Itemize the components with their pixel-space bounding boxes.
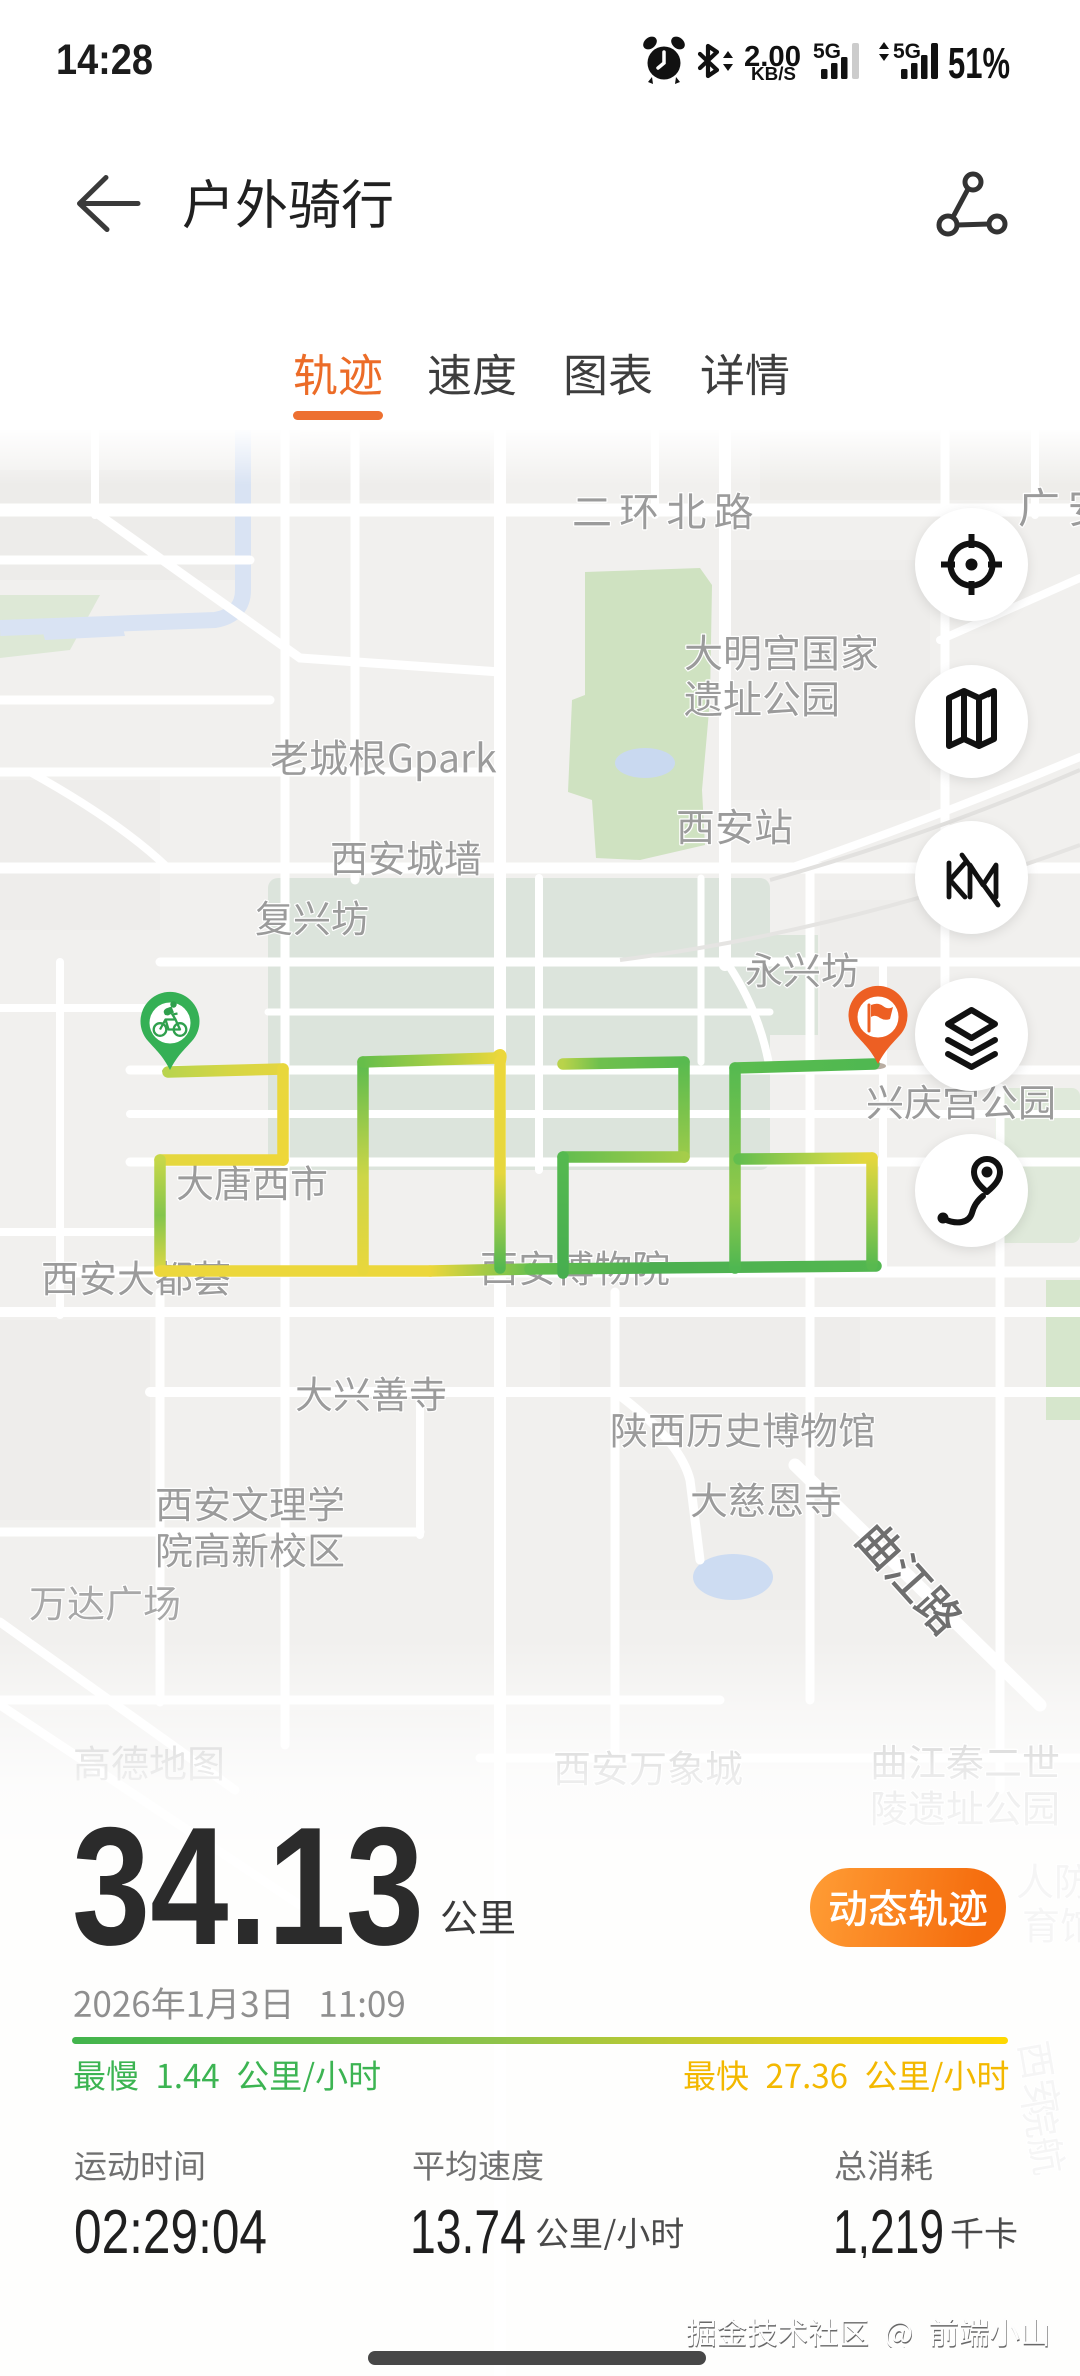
svg-text:34.13: 34.13 xyxy=(72,1818,424,1950)
svg-text:KB/S: KB/S xyxy=(751,64,796,84)
svg-text:1,219: 1,219 xyxy=(833,2198,944,2258)
svg-text:5G: 5G xyxy=(893,40,921,63)
svg-text:13.74: 13.74 xyxy=(410,2198,526,2258)
svg-text:14:28: 14:28 xyxy=(56,38,153,80)
svg-text:02:29:04: 02:29:04 xyxy=(74,2198,267,2258)
svg-text:51%: 51% xyxy=(948,39,1010,88)
svg-text:5G: 5G xyxy=(813,40,841,63)
